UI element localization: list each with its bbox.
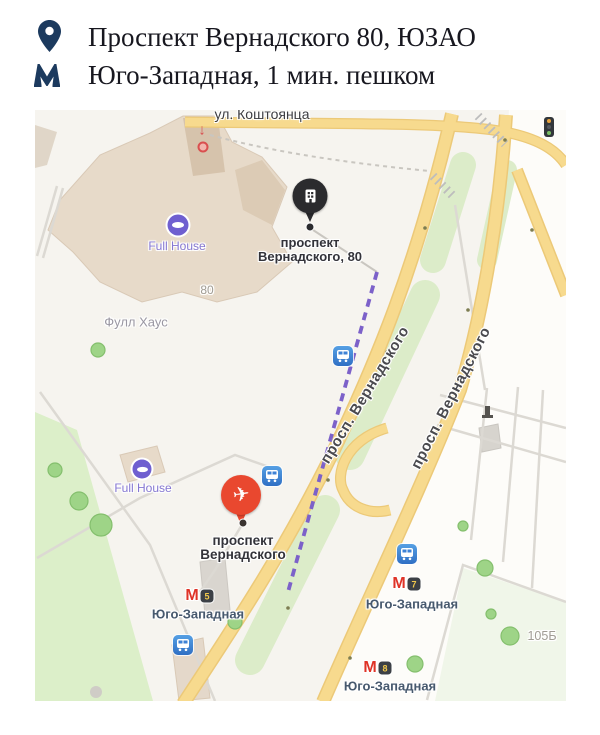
location-header: Проспект Вернадского 80, ЮЗАО Юго-Западн… xyxy=(0,0,600,105)
metro-m-icon-1[interactable]: М xyxy=(185,587,198,605)
bus-stop-icon-4[interactable] xyxy=(397,544,417,564)
traffic-light-icon xyxy=(544,117,554,137)
route-start-arrow-icon: ↓ xyxy=(198,122,206,139)
metro-marker-label: проспект Вернадского xyxy=(200,534,286,562)
route-start-dot xyxy=(198,142,209,153)
metro-text: Юго-Западная, 1 мин. пешком xyxy=(88,60,435,91)
map-canvas[interactable]: ↓ ул. Коштоянца просп. Вернадского просп… xyxy=(35,110,566,701)
metro-station-label-1[interactable]: Юго-Западная xyxy=(152,607,244,622)
metro-exit-badge-3: 8 xyxy=(379,662,392,675)
full-house-poi-icon[interactable] xyxy=(168,215,189,236)
bus-stop-icon-1[interactable] xyxy=(333,346,353,366)
destination-pin-dot xyxy=(306,223,315,232)
destination-pin[interactable] xyxy=(293,179,328,214)
full-house-label-2[interactable]: Full House xyxy=(114,481,171,495)
metro-pin-dot xyxy=(239,519,248,528)
full-house-ru-label: Фулл Хаус xyxy=(104,315,168,330)
full-house-poi-icon-2[interactable] xyxy=(133,460,152,479)
location-pin-icon xyxy=(38,20,61,57)
bus-stop-icon-2[interactable] xyxy=(262,466,282,486)
address-text: Проспект Вернадского 80, ЮЗАО xyxy=(88,22,476,53)
metro-station-pin[interactable]: ✈ xyxy=(221,475,261,515)
house-number-105b: 105Б xyxy=(527,629,556,643)
metro-exit-badge-1: 5 xyxy=(201,590,214,603)
full-house-label-1[interactable]: Full House xyxy=(148,239,205,253)
street-label-koshtoyantsa: ул. Коштоянца xyxy=(215,110,310,122)
listing-location-card: Проспект Вернадского 80, ЮЗАО Юго-Западн… xyxy=(0,0,600,735)
metro-station-label-2[interactable]: Юго-Западная xyxy=(366,597,458,612)
bus-stop-icon-3[interactable] xyxy=(173,635,193,655)
building-icon xyxy=(303,189,317,204)
house-number-80: 80 xyxy=(200,283,213,297)
metro-m-icon-3[interactable]: М xyxy=(363,659,376,677)
plane-icon: ✈ xyxy=(231,484,250,506)
metro-logo-icon xyxy=(33,62,61,93)
metro-exit-badge-2: 7 xyxy=(408,578,421,591)
destination-marker-label: проспект Вернадского, 80 xyxy=(258,236,362,264)
metro-station-label-3[interactable]: Юго-Западная xyxy=(344,679,436,694)
metro-m-icon-2[interactable]: М xyxy=(392,575,405,593)
